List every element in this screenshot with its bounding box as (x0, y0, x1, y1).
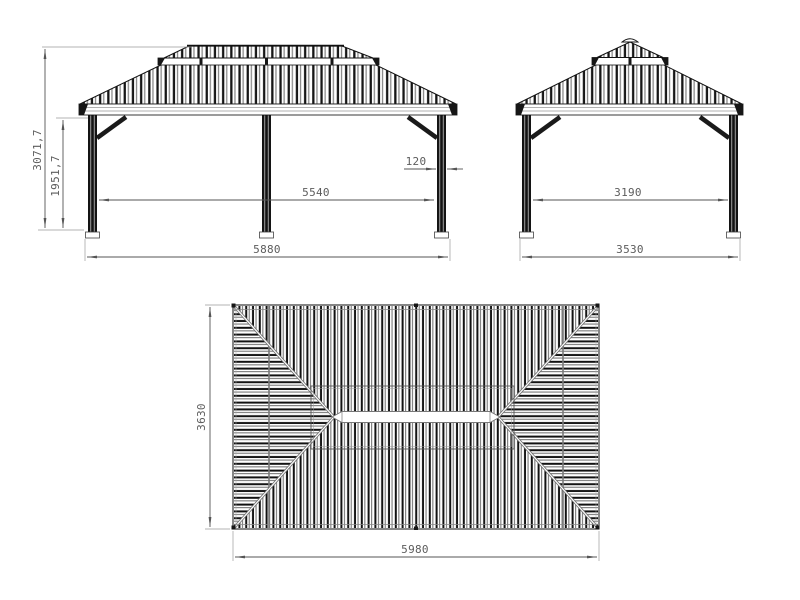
gazebo-technical-drawing: 3071,7 1951,7 5540 120 5880 (0, 0, 800, 600)
front-base-left (86, 232, 100, 238)
front-base-right (435, 232, 449, 238)
dim-front-total-width-label: 5880 (253, 243, 281, 256)
dim-side-inner-span-label: 3190 (614, 186, 642, 199)
side-eave-fascia (516, 104, 743, 115)
side-base-right (727, 232, 741, 238)
plan-corner-mark (596, 304, 600, 308)
plan-ridge (332, 412, 500, 423)
dim-front-inner-span-label: 5540 (302, 186, 330, 199)
side-post-left (522, 115, 531, 232)
front-post-middle (262, 115, 271, 232)
plan-ridge-cap (332, 412, 500, 423)
side-base-left (520, 232, 534, 238)
dim-plan-depth-label: 3630 (195, 403, 208, 431)
plan-corner-mark (232, 304, 236, 308)
front-collar-clip (265, 58, 268, 64)
side-collar-clip (629, 58, 632, 65)
front-eave-fascia (79, 104, 457, 115)
front-base-middle (260, 232, 274, 238)
gazebo-technical-drawing-page: 3071,7 1951,7 5540 120 5880 (0, 0, 800, 600)
plan-center-tick (414, 304, 418, 308)
plan-corner-mark (596, 526, 600, 530)
roof-plan-view: 3630 5980 (195, 304, 600, 562)
front-post-right (437, 115, 446, 232)
front-upper-roof-panel (164, 46, 373, 58)
front-collar-clip (200, 58, 203, 64)
front-collar-clip (331, 58, 334, 64)
dim-front-post-height-label: 1951,7 (49, 155, 62, 197)
dim-front-total-height-label: 3071,7 (31, 129, 44, 171)
dim-side-total-width-label: 3530 (616, 243, 644, 256)
plan-corner-mark (232, 526, 236, 530)
dim-front-post-width-label: 120 (406, 155, 427, 168)
dim-plan-width-label: 5980 (401, 543, 429, 556)
side-post-right (729, 115, 738, 232)
front-collar-band (158, 58, 379, 65)
front-post-left (88, 115, 97, 232)
plan-center-tick (414, 527, 418, 531)
